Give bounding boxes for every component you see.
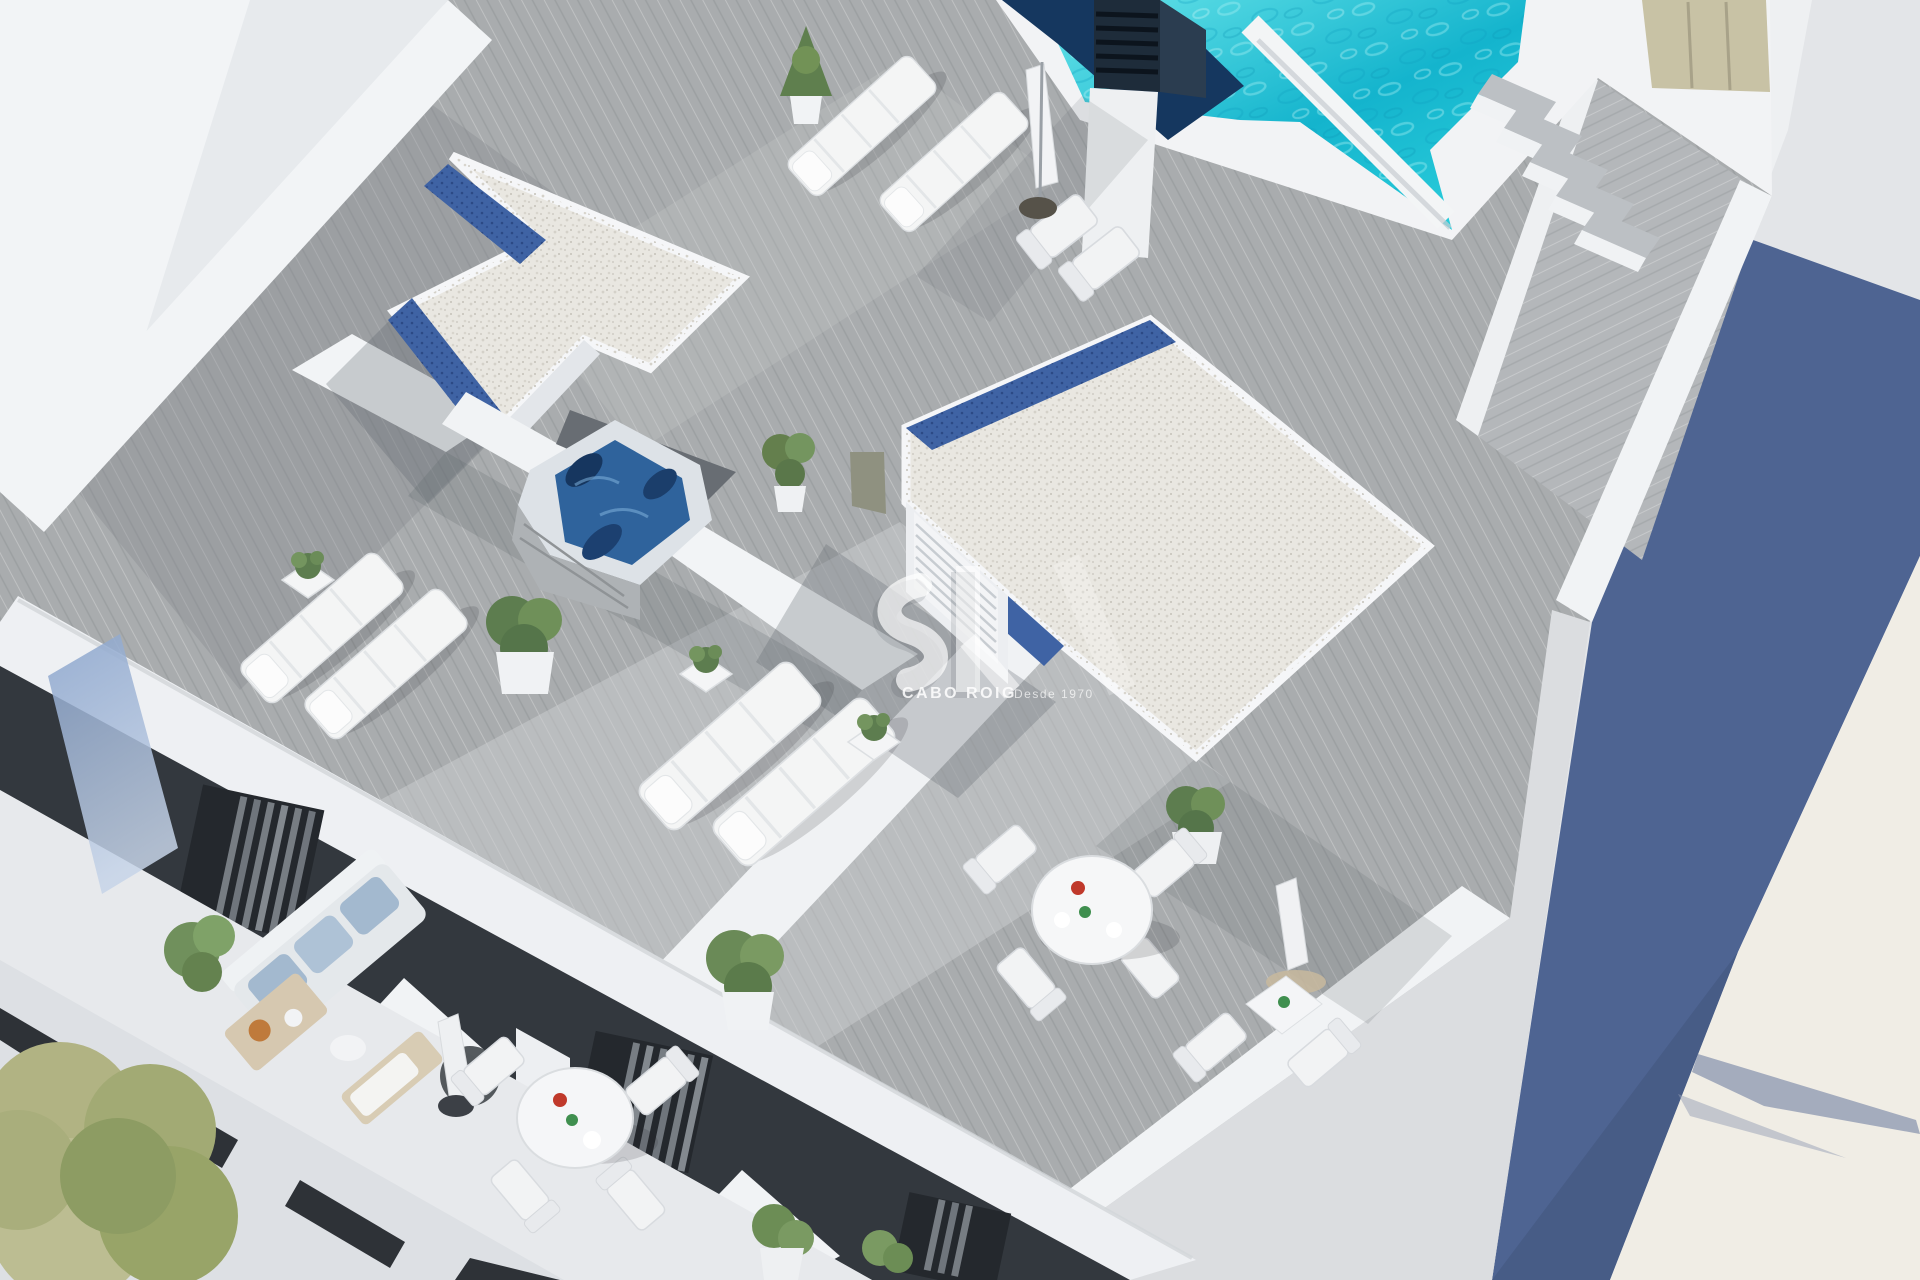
roof-access-door [1642,0,1770,92]
rooftop-render: CABO ROIG Desde 1970 [0,0,1920,1280]
watermark-brand: CABO ROIG [902,685,1017,702]
round-table [1032,856,1152,964]
scene-svg: CABO ROIG Desde 1970 [0,0,1920,1280]
service-door [850,452,886,514]
watermark-tagline: Desde 1970 [1014,687,1094,701]
side-table [330,1035,366,1061]
